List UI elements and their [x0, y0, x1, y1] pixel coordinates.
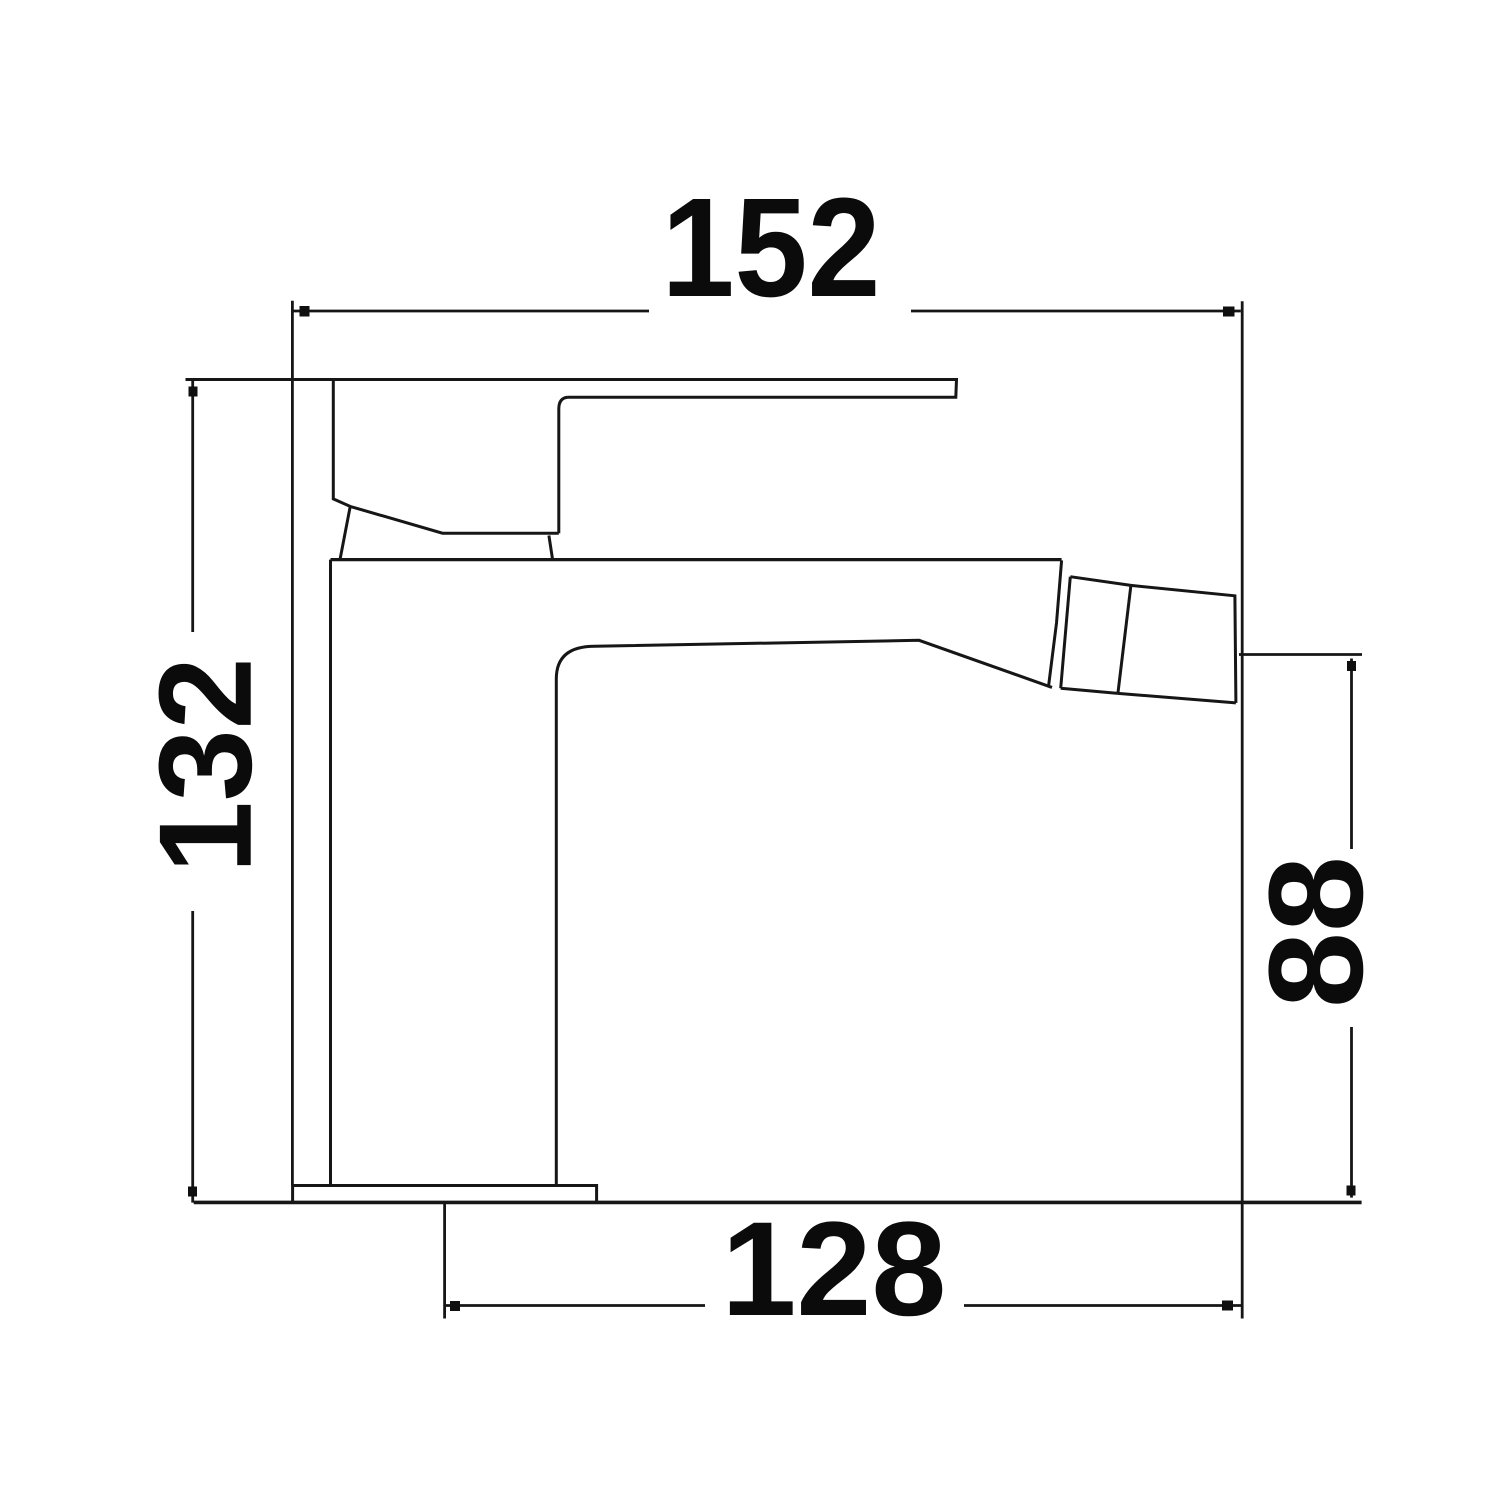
svg-text:152: 152 [662, 168, 881, 326]
svg-text:88: 88 [1242, 856, 1391, 1008]
svg-text:132: 132 [132, 657, 279, 873]
svg-text:128: 128 [721, 1195, 946, 1344]
